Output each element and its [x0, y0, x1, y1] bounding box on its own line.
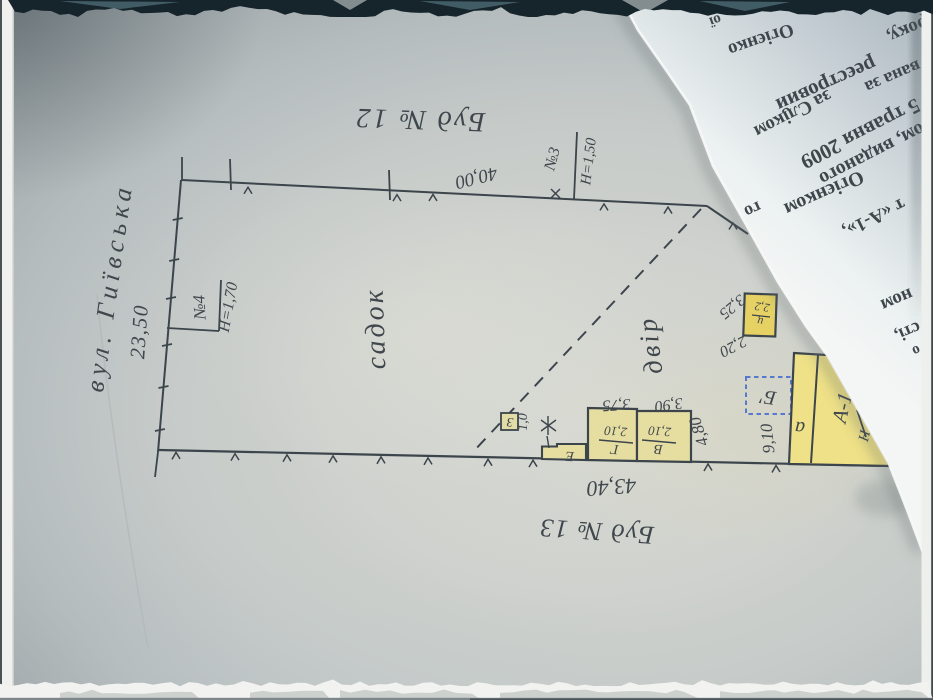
svg-text:40,00: 40,00 [453, 162, 500, 193]
svg-text:43,40: 43,40 [586, 473, 637, 501]
svg-text:23,50: 23,50 [125, 303, 153, 359]
svg-text:двір: двір [632, 314, 669, 376]
svg-text:2,10: 2,10 [603, 423, 627, 440]
svg-text:а: а [794, 417, 806, 440]
svg-text:Б′: Б′ [758, 385, 779, 409]
svg-text:3,75: 3,75 [602, 395, 632, 414]
svg-text:Н=1,70: Н=1,70 [216, 281, 242, 335]
svg-text:№3: №3 [541, 145, 564, 173]
svg-text:1,0: 1,0 [516, 413, 531, 431]
svg-text:2,2: 2,2 [754, 299, 771, 315]
svg-text:2,10: 2,10 [647, 423, 671, 440]
svg-text:Буд № 12: Буд № 12 [354, 102, 487, 138]
svg-text:9,10: 9,10 [756, 422, 778, 454]
svg-text:Н=1,50: Н=1,50 [578, 137, 600, 187]
svg-text:Е: Е [565, 448, 576, 464]
svg-text:Буд № 13: Буд № 13 [538, 513, 656, 550]
svg-text:№4: №4 [189, 294, 209, 321]
svg-text:2,20: 2,20 [717, 332, 750, 360]
svg-text:В: В [653, 441, 663, 457]
svg-text:вул. Гиївська: вул. Гиївська [80, 181, 138, 394]
svg-text:садок: садок [359, 287, 393, 370]
svg-text:3,90: 3,90 [654, 394, 685, 415]
